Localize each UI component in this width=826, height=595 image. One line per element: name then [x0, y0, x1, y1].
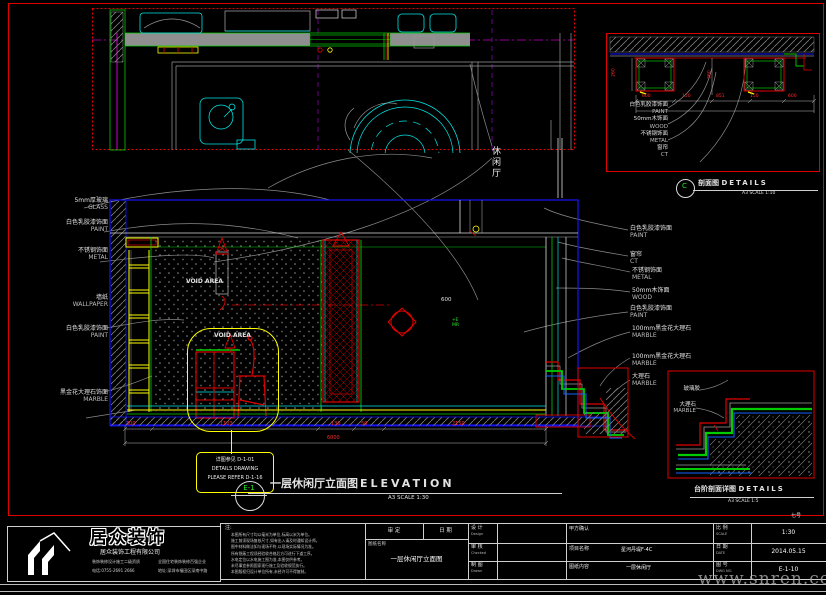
void-area-label-1: VOID AREA	[186, 279, 223, 286]
sheet-name-value: 一层休闲厅立面图	[365, 556, 468, 563]
dim-segment-1: 300	[126, 422, 136, 428]
sheet-name-label: 图纸名称	[368, 542, 386, 547]
company-line-right-1: 全国住宅装饰装修百强企业	[158, 560, 206, 565]
titleblock-divider	[8, 515, 824, 516]
check-label: 审 核Checked	[471, 545, 486, 555]
material-label-right-1: 白色乳胶漆饰面PAINT	[630, 226, 672, 240]
elevation-marker-text: E-1	[235, 484, 263, 492]
detail-bottom-marble-label: 大理石 MARBLE	[652, 402, 696, 415]
floor-plan-drawing	[92, 8, 578, 153]
material-label-left-2: 白色乳胶漆饰面PAINT	[8, 220, 108, 234]
project-value: 星河丹堤F-4C	[621, 548, 652, 554]
dim-segment-5: 2150	[452, 422, 465, 428]
sheet-border-right	[823, 3, 824, 515]
cad-sheet: 休闲厅	[0, 0, 826, 595]
elevation-title: 一层休闲厅立面图ELEVATION	[270, 478, 455, 491]
detail-top-dim-v1: 260	[612, 68, 617, 77]
material-label-right-8: 大理石MARBLE	[632, 374, 657, 388]
design-label: 设 计Design	[471, 526, 483, 536]
material-label-right-7: 100mm黑金花大理石MARBLE	[632, 354, 691, 368]
company-name: 居众装饰工程有限公司	[100, 550, 160, 557]
project-label: 项目名称	[569, 547, 589, 553]
watermark: www.snren.com	[698, 570, 826, 590]
detail-top-dim-3: 851	[716, 94, 725, 99]
approve-label: 审 定	[365, 528, 423, 534]
content-value: 一层休闲厅	[626, 566, 651, 572]
material-label-right-4: 50mm木饰面WOOD	[632, 288, 669, 302]
content-label: 图纸内容	[569, 565, 589, 571]
detail-top-material-labels: 白色乳胶漆饰面PAINT 50mm木饰面WOOD 不锈钢饰面METAL 窗帘CT	[568, 102, 668, 160]
elevation-scale: A3 SCALE 1:30	[388, 495, 429, 501]
detail-bottom-underline	[690, 497, 814, 498]
logo-block: 居众装饰 居众装饰工程有限公司 装饰装修设计施工二级资质 全国住宅装饰装修百强企…	[7, 526, 221, 582]
marker-divider	[231, 495, 267, 496]
client-confirm-label: 甲方确认	[569, 527, 589, 533]
date-label: 日 期	[423, 528, 468, 534]
notes-lines: 本图所有尺寸均以毫米为单位,标高以米为单位。 施工前须现场复核尺寸,如有出入请及…	[231, 532, 320, 575]
brand-name: 居众装饰	[90, 529, 166, 549]
detail-top-dim-4: 150	[750, 94, 759, 99]
date2-label: 日 期DATE	[716, 545, 728, 555]
detail-top-dim-1: 600	[642, 94, 651, 99]
material-label-left-4: 墙纸WALLPAPER	[8, 295, 108, 309]
scale-label: 比 例SCALE	[716, 526, 728, 536]
revision-cloud	[187, 328, 279, 432]
company-line-left-2: 电话:0755-2691 2666	[92, 569, 135, 574]
material-label-right-2: 窗帘CT	[630, 252, 642, 266]
detail-top-scale: A3 SCALE 1:10	[742, 191, 775, 196]
detail-bottom-title: 台阶剖面详图 DETAILS	[694, 485, 785, 493]
material-label-left-3: 不锈钢饰面METAL	[8, 248, 108, 262]
dim-segment-3: 130	[331, 422, 341, 428]
material-label-left-1: 5mm厚玻璃GLASS	[8, 198, 108, 212]
detail-top-marker-text: C	[676, 182, 693, 190]
material-label-right-6: 100mm黑金花大理石MARBLE	[632, 326, 691, 340]
detail-top-title: 剖面图 DETAILS	[698, 179, 768, 187]
detail-bottom-scale: A3 SCALE 1:5	[728, 499, 758, 504]
dim-600-label: 600	[441, 297, 452, 303]
sheet-tag: 七号	[791, 514, 801, 520]
detail-top-dim-5: 600	[788, 94, 797, 99]
sheet-border-top	[8, 3, 824, 4]
detail-bottom-glue-label: 玻璃胶	[656, 386, 700, 392]
bottom-rule-2	[0, 591, 826, 592]
dim-segment-4: 50	[361, 422, 367, 428]
level-tag: +E MR	[452, 318, 459, 328]
material-label-right-3: 不锈钢饰面METAL	[632, 268, 662, 282]
scale-value: 1:30	[751, 530, 826, 537]
draw-label: 制 图Drawn	[471, 563, 483, 573]
notes-title: 注:	[225, 526, 232, 532]
cloud-stem	[231, 430, 232, 454]
company-line-right-2: 地址:深圳市福田区深南中路	[158, 569, 207, 574]
date-value: 2014.05.15	[751, 549, 826, 556]
company-line-left-1: 装饰装修设计施工二级资质	[92, 560, 140, 565]
material-label-right-5: 白色乳胶漆饰面PAINT	[630, 306, 672, 320]
room-label: 休闲厅	[486, 146, 500, 179]
detail-top-dim-2: 150	[682, 94, 691, 99]
material-label-left-5: 白色乳胶漆饰面PAINT	[8, 326, 108, 340]
title-underline	[248, 493, 562, 494]
detail-top-dim-v2: 360	[708, 70, 713, 79]
dim-total: 6000	[327, 436, 340, 442]
elevation-drawing	[95, 190, 635, 455]
material-label-left-6: 黑金花大理石饰面MARBLE	[0, 390, 108, 404]
company-logo-icon	[22, 531, 78, 577]
